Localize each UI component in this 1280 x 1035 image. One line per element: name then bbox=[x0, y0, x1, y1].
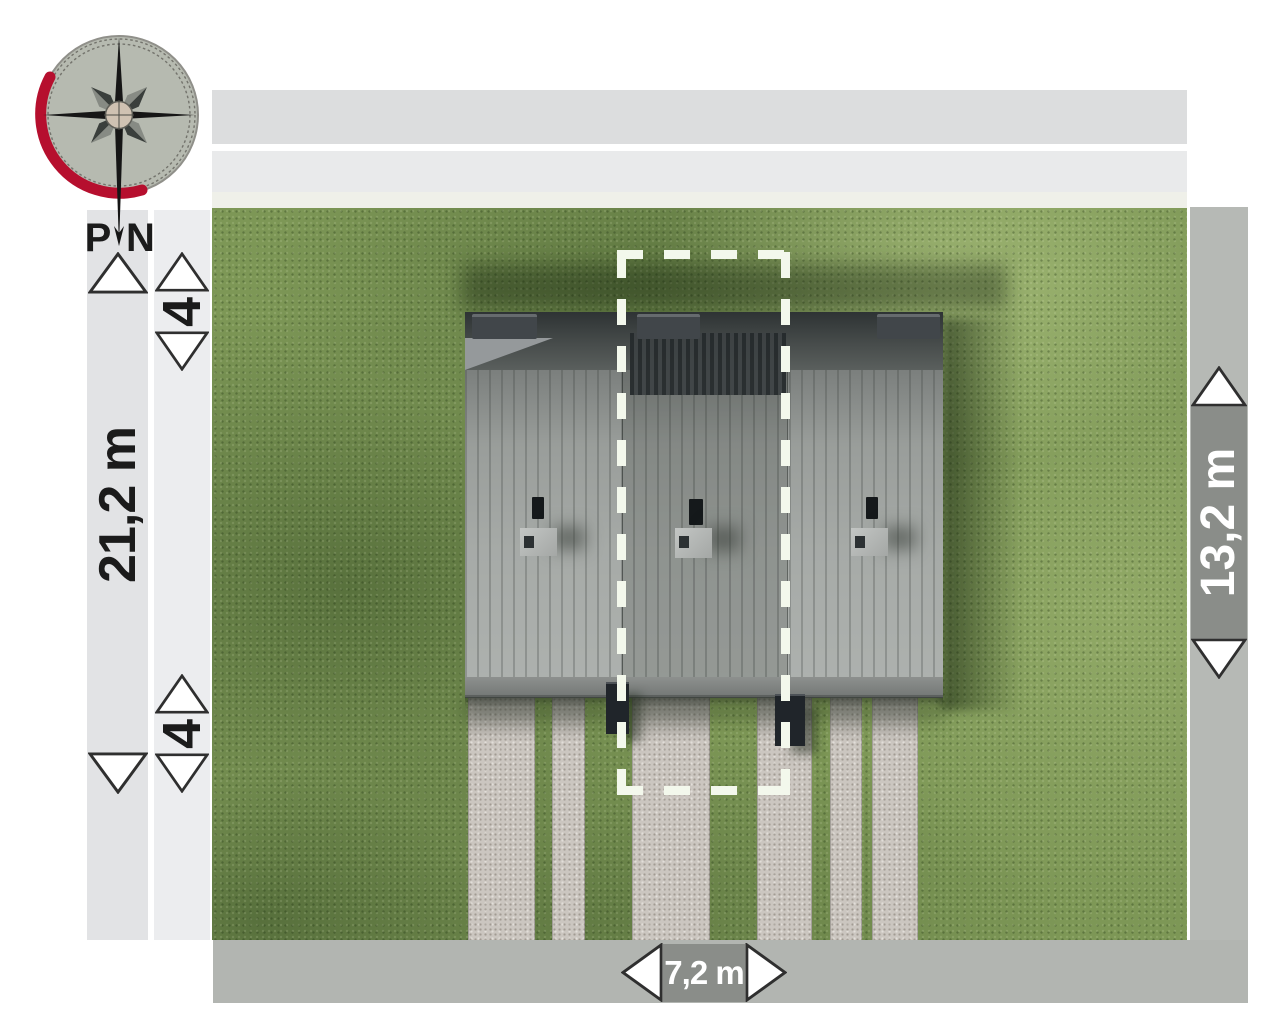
arrow-up-icon bbox=[155, 674, 209, 714]
chimney-middle bbox=[637, 314, 700, 339]
house-depth-dimension: 13,2 m bbox=[1191, 407, 1247, 638]
compass-west-letter: P bbox=[84, 216, 112, 261]
arrow-down-icon bbox=[1191, 638, 1247, 679]
lot-width-dimension: 7,2 m bbox=[663, 944, 745, 1002]
entry-structure-right-boundary bbox=[775, 694, 805, 746]
front-setback-dimension: 4 bbox=[154, 290, 210, 334]
curb-strip-top bbox=[212, 192, 1187, 208]
compass-north-label: N bbox=[126, 216, 155, 260]
parcel-outline-top bbox=[617, 250, 790, 259]
rear-setback-dimension: 4 bbox=[154, 712, 210, 756]
parcel-outline-left bbox=[617, 252, 626, 795]
parcel-outline-bottom bbox=[617, 786, 790, 795]
parcel-outline-right bbox=[781, 252, 790, 795]
street-top-far bbox=[212, 90, 1187, 144]
dormer-window bbox=[855, 536, 865, 548]
house-depth-label: 13,2 m bbox=[1192, 448, 1247, 597]
dormer-left bbox=[520, 528, 557, 556]
dormer-window bbox=[524, 536, 534, 548]
rear-setback-label: 4 bbox=[151, 719, 213, 749]
driveway-right bbox=[872, 697, 918, 940]
roof-ridge-corrugation bbox=[630, 333, 786, 395]
house-shadow-north bbox=[462, 264, 1007, 310]
plot-depth-dimension: 21,2 m bbox=[87, 400, 148, 610]
compass-rose-icon bbox=[34, 32, 202, 254]
house-shadow-east bbox=[941, 318, 1021, 710]
dormer-right bbox=[851, 528, 888, 556]
skylight-middle bbox=[689, 499, 703, 525]
arrow-down-icon bbox=[155, 331, 209, 371]
plot-depth-label: 21,2 m bbox=[88, 427, 148, 583]
chimney-left bbox=[472, 314, 537, 339]
skylight-right bbox=[866, 497, 878, 519]
front-setback-label: 4 bbox=[151, 297, 213, 327]
skylight-left bbox=[532, 497, 544, 519]
site-plan: 21,2 m 4 4 13,2 m 7,2 m bbox=[0, 0, 1280, 1035]
driveway-left bbox=[468, 697, 535, 940]
lot-width-label: 7,2 m bbox=[664, 954, 743, 992]
dormer-window bbox=[679, 536, 689, 548]
roof-north-highlight bbox=[465, 338, 553, 370]
compass-west-label: P bbox=[85, 216, 112, 260]
arrow-up-icon bbox=[1191, 366, 1247, 407]
arrow-right-icon bbox=[745, 943, 787, 1002]
roof-middle-unit-shade bbox=[622, 368, 788, 677]
driveway-middle bbox=[632, 697, 710, 940]
street-top-near bbox=[212, 151, 1187, 192]
walkway-right bbox=[830, 697, 862, 940]
compass-north-letter: N bbox=[126, 216, 154, 261]
arrow-left-icon bbox=[621, 943, 663, 1002]
arrow-up-icon bbox=[155, 252, 209, 292]
arrow-down-icon bbox=[88, 752, 148, 794]
south-eave-band bbox=[465, 677, 943, 698]
chimney-right bbox=[877, 314, 940, 339]
dormer-middle bbox=[675, 528, 712, 558]
walkway-left bbox=[552, 697, 585, 940]
eave-drop-shadow bbox=[465, 697, 943, 707]
arrow-down-icon bbox=[155, 753, 209, 793]
